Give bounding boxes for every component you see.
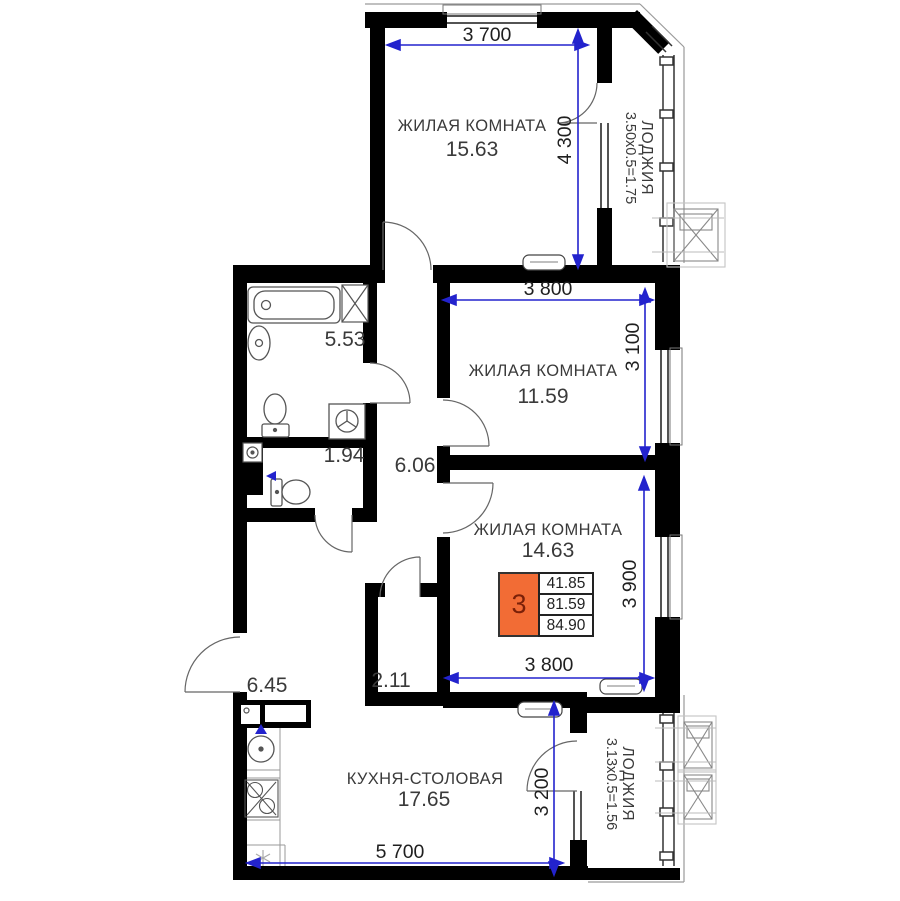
loggia-bottom-name: ЛОДЖИЯ: [618, 738, 635, 830]
toilet-icon: [262, 394, 289, 437]
loggia-top-label: ЛОДЖИЯ 3.50х0.5=1.75: [621, 112, 655, 204]
door-entry: [185, 637, 240, 692]
area-wardrobe: 2.11: [371, 669, 410, 693]
loggia-bottom-calc: 3.13х0.5=1.56: [602, 738, 618, 830]
wc-toilet-icon: [271, 479, 310, 506]
badge-living-area: 41.85: [538, 572, 594, 595]
room-name-living-1: ЖИЛАЯ КОМНАТА: [398, 117, 547, 135]
dim-living1-width: 3 700: [463, 25, 512, 47]
vent-box-icon: [243, 443, 262, 462]
room-name-living-3: ЖИЛАЯ КОМНАТА: [474, 521, 623, 539]
area-wc: 1.94: [324, 444, 365, 468]
dim-living1-height: 4 300: [555, 116, 577, 165]
dim-kitchen-width: 5 700: [376, 842, 425, 864]
sink-icon: [248, 326, 270, 360]
loggia-top-name: ЛОДЖИЯ: [637, 112, 654, 204]
door-living2: [443, 400, 489, 446]
washing-machine-icon: [329, 404, 365, 439]
loggia-top-calc: 3.50х0.5=1.75: [621, 112, 637, 204]
area-bathroom: 5.53: [325, 328, 366, 352]
floor-plan: ЖИЛАЯ КОМНАТА 15.63 ЖИЛАЯ КОМНАТА 11.59 …: [0, 0, 900, 901]
stove-icon: [245, 780, 278, 817]
door-living1: [383, 222, 431, 270]
dim-kitchen-height: 3 200: [532, 768, 554, 817]
area-corridor: 6.06: [395, 454, 436, 478]
badge-total-area: 84.90: [538, 614, 594, 637]
rooms-count: 3: [511, 589, 526, 620]
room-name-living-2: ЖИЛАЯ КОМНАТА: [469, 362, 618, 380]
room-area-living-3: 14.63: [522, 539, 575, 563]
door-wardrobe: [380, 557, 420, 597]
area-hall: 6.45: [247, 674, 288, 698]
dim-living2-height: 3 100: [623, 323, 645, 372]
bathtub-icon: [248, 287, 340, 323]
room-name-kitchen: КУХНЯ-СТОЛОВАЯ: [347, 770, 504, 788]
kitchen-units-icon: [235, 700, 311, 728]
room-area-living-1: 15.63: [446, 138, 499, 162]
dim-living3-height: 3 900: [620, 560, 642, 609]
duct-shaft-icon: [342, 285, 368, 322]
door-bathroom: [370, 363, 410, 403]
rooms-count-badge: 3: [498, 572, 540, 637]
dim-living2-width: 3 800: [524, 279, 573, 301]
loggia-bottom-label: ЛОДЖИЯ 3.13х0.5=1.56: [602, 738, 636, 830]
badge-apartment-area: 81.59: [538, 593, 594, 616]
kitchen-sink-icon: [248, 736, 274, 762]
room-area-kitchen: 17.65: [398, 788, 451, 812]
room-area-living-2: 11.59: [518, 385, 569, 409]
door-wc: [315, 515, 352, 552]
dim-living3-width: 3 800: [525, 655, 574, 677]
